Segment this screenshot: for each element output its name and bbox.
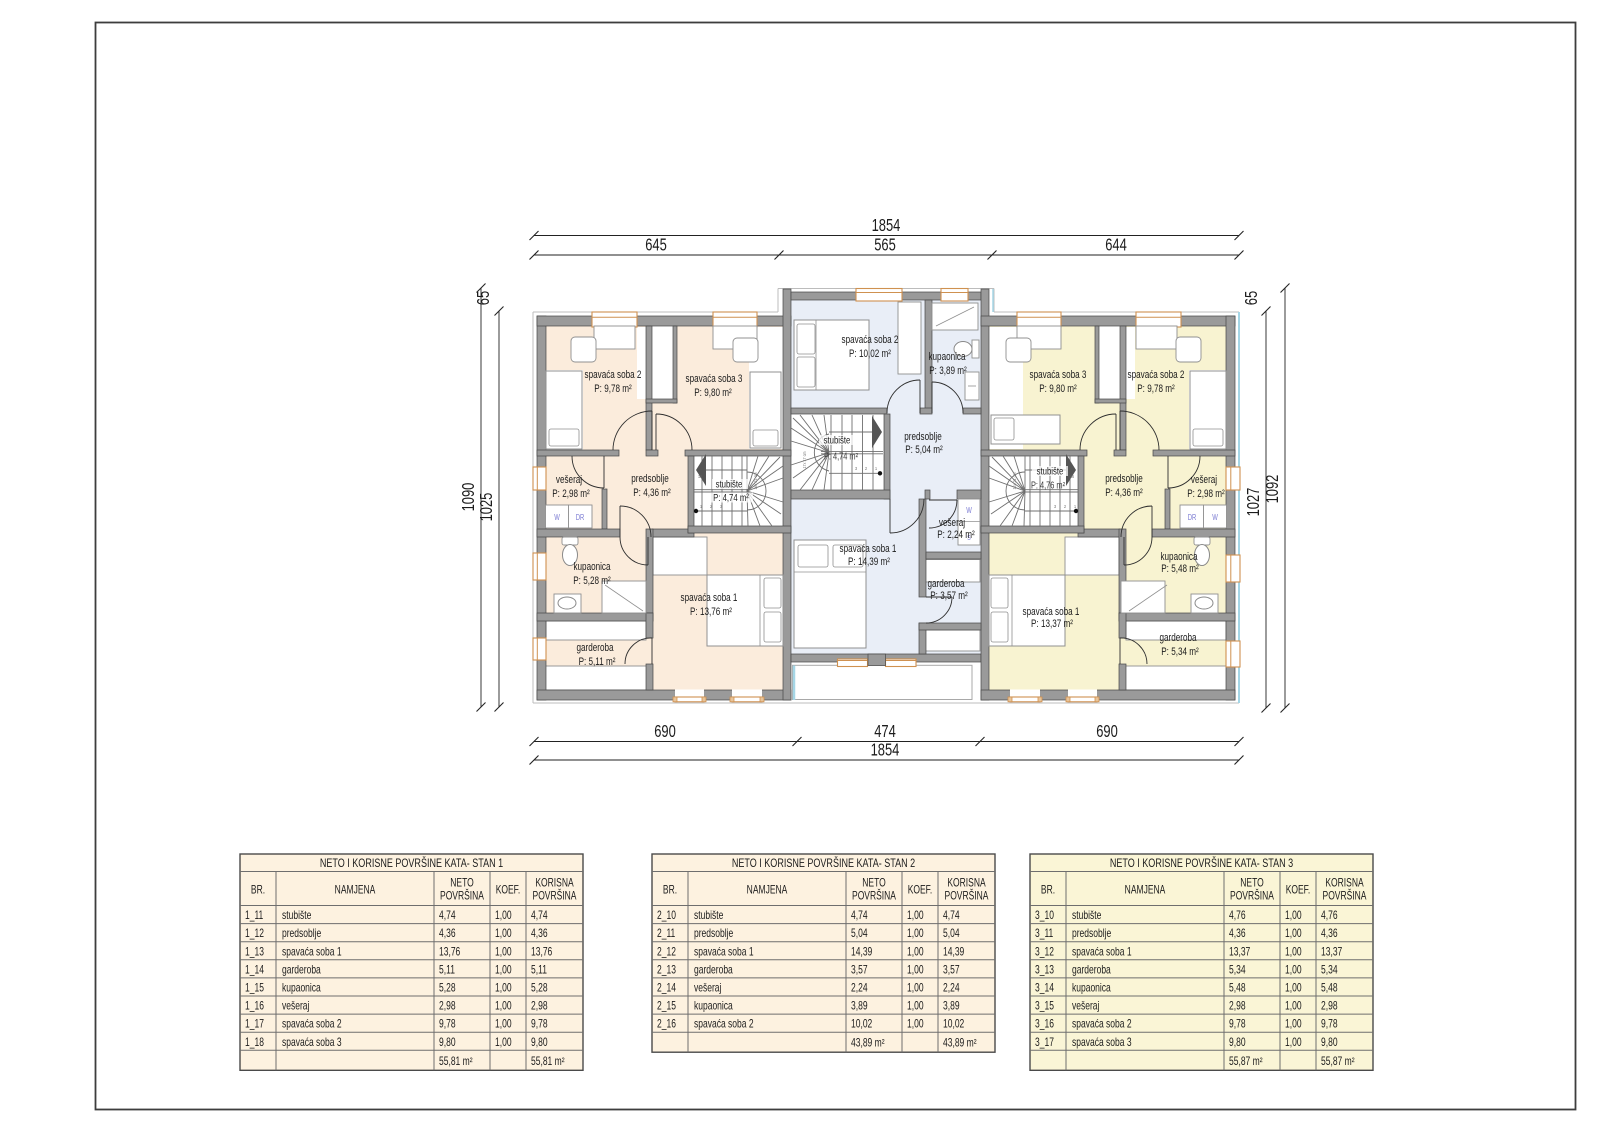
svg-text:P: 2,24 m²: P: 2,24 m² [937,529,975,542]
svg-text:10,02: 10,02 [943,1019,965,1032]
svg-text:spavaća soba 1: spavaća soba 1 [694,946,754,959]
svg-text:1090: 1090 [459,483,478,512]
svg-text:4,76: 4,76 [1321,910,1338,923]
svg-text:13,37: 13,37 [1321,946,1343,959]
svg-text:vešeraj: vešeraj [1072,1001,1099,1014]
svg-text:5,11: 5,11 [531,964,547,977]
svg-text:stubište: stubište [716,478,743,489]
svg-text:spavaća soba 2: spavaća soba 2 [694,1019,754,1032]
svg-text:spavaća soba 3: spavaća soba 3 [1030,369,1087,382]
svg-text:9,78: 9,78 [1229,1019,1246,1032]
svg-text:KOEF.: KOEF. [908,884,933,897]
svg-text:2_16: 2_16 [657,1019,676,1032]
svg-text:1,00: 1,00 [495,1037,512,1050]
svg-text:spavaća soba 2: spavaća soba 2 [842,334,899,347]
svg-text:P: 14,39 m²: P: 14,39 m² [848,556,891,569]
svg-text:4,74: 4,74 [531,910,548,923]
svg-text:P: 5,11 m²: P: 5,11 m² [579,656,617,669]
svg-text:garderoba: garderoba [1159,632,1197,645]
svg-text:NETO: NETO [450,877,474,890]
svg-text:NETO I KORISNE POVRŠINE KATA-: NETO I KORISNE POVRŠINE KATA- STAN 2 [732,856,915,871]
svg-text:NETO I KORISNE POVRŠINE KATA-: NETO I KORISNE POVRŠINE KATA- STAN 3 [1110,856,1293,871]
svg-text:P: 13,76 m²: P: 13,76 m² [690,606,733,619]
svg-text:POVRŠINA: POVRŠINA [1323,888,1367,903]
svg-text:65: 65 [474,291,493,305]
svg-text:garderoba: garderoba [1072,964,1111,977]
svg-text:1,00: 1,00 [907,982,924,995]
svg-text:644: 644 [1105,236,1127,255]
svg-text:1_17: 1_17 [245,1019,264,1032]
svg-text:55,87 m²: 55,87 m² [1321,1056,1355,1069]
svg-text:vešeraj: vešeraj [1191,474,1217,487]
svg-text:3_10: 3_10 [1035,910,1054,923]
svg-text:NAMJENA: NAMJENA [747,884,788,897]
svg-text:5,28: 5,28 [439,982,456,995]
svg-text:W: W [554,514,560,522]
svg-text:2,98: 2,98 [1321,1001,1338,1014]
svg-text:1,00: 1,00 [1285,1019,1302,1032]
svg-text:vešeraj: vešeraj [282,1001,309,1014]
svg-text:NETO I KORISNE POVRŠINE KATA-: NETO I KORISNE POVRŠINE KATA- STAN 1 [320,856,503,871]
svg-text:4,76: 4,76 [1229,910,1246,923]
svg-text:1854: 1854 [871,741,900,760]
svg-text:13,76: 13,76 [439,946,461,959]
svg-text:garderoba: garderoba [282,964,321,977]
svg-text:2,98: 2,98 [1229,1001,1246,1014]
svg-text:3_14: 3_14 [1035,982,1054,995]
svg-text:3_12: 3_12 [1035,946,1054,959]
svg-text:5,34: 5,34 [1229,964,1246,977]
svg-text:spavaća soba 1: spavaća soba 1 [1023,606,1080,619]
svg-text:565: 565 [874,236,896,255]
svg-text:1_14: 1_14 [245,964,264,977]
svg-text:BR.: BR. [1041,884,1055,897]
svg-text:4,74: 4,74 [851,910,868,923]
svg-text:P: 5,28 m²: P: 5,28 m² [573,575,611,588]
svg-text:P: 2,98 m²: P: 2,98 m² [1187,488,1225,501]
svg-text:5,28: 5,28 [531,982,548,995]
svg-text:645: 645 [645,236,667,255]
svg-text:4,36: 4,36 [531,928,548,941]
svg-text:4,36: 4,36 [1229,928,1246,941]
svg-text:14,39: 14,39 [943,946,965,959]
svg-text:16x 21 cm: 16x 21 cm [1011,472,1017,489]
svg-text:spavaća soba 1: spavaća soba 1 [840,543,897,556]
svg-text:1,00: 1,00 [1285,910,1302,923]
svg-text:spavaća soba 3: spavaća soba 3 [1072,1037,1132,1050]
svg-text:3,89: 3,89 [851,1001,868,1014]
svg-text:W: W [1212,514,1218,522]
svg-text:KOEF.: KOEF. [1286,884,1311,897]
svg-text:3_17: 3_17 [1035,1037,1054,1050]
svg-text:1_13: 1_13 [245,946,264,959]
svg-text:65: 65 [1242,291,1261,305]
svg-text:P: 3,89 m²: P: 3,89 m² [929,365,967,378]
svg-text:9,80: 9,80 [1229,1037,1246,1050]
svg-text:9,78: 9,78 [531,1019,548,1032]
svg-text:2_10: 2_10 [657,910,676,923]
svg-text:kupaonica: kupaonica [573,561,611,574]
svg-text:1,00: 1,00 [907,928,924,941]
svg-text:43,89 m²: 43,89 m² [851,1038,885,1051]
svg-text:1,00: 1,00 [495,910,512,923]
svg-text:1_12: 1_12 [245,928,264,941]
svg-text:2_12: 2_12 [657,946,676,959]
svg-text:garderoba: garderoba [576,642,614,655]
svg-text:BR.: BR. [251,884,265,897]
svg-text:1_11: 1_11 [245,910,264,923]
svg-text:2,24: 2,24 [943,982,960,995]
svg-text:9,80: 9,80 [531,1037,548,1050]
svg-text:5,48: 5,48 [1229,982,1246,995]
svg-text:9,80: 9,80 [1321,1037,1338,1050]
svg-text:stubište: stubište [1072,910,1102,923]
svg-text:55,81 m²: 55,81 m² [531,1056,565,1069]
svg-text:W: W [966,507,972,515]
svg-text:spavaća soba 2: spavaća soba 2 [1128,369,1185,382]
svg-text:POVRŠINA: POVRŠINA [945,888,989,903]
svg-text:P: 9,80 m²: P: 9,80 m² [1039,383,1077,396]
svg-text:P: 9,78 m²: P: 9,78 m² [594,383,632,396]
svg-text:9,78: 9,78 [439,1019,456,1032]
svg-text:spavaća soba 2: spavaća soba 2 [1072,1019,1132,1032]
svg-text:9,78: 9,78 [1321,1019,1338,1032]
svg-text:NAMJENA: NAMJENA [1125,884,1166,897]
svg-text:stubište: stubište [282,910,312,923]
svg-text:3_13: 3_13 [1035,964,1054,977]
svg-text:5,04: 5,04 [943,928,960,941]
svg-text:predsoblje: predsoblje [694,928,734,941]
svg-text:1,00: 1,00 [1285,964,1302,977]
svg-text:P: 5,34 m²: P: 5,34 m² [1161,646,1199,659]
svg-text:garderoba: garderoba [927,578,965,591]
svg-text:14,39: 14,39 [851,946,873,959]
svg-text:10,02: 10,02 [851,1019,873,1032]
svg-text:1854: 1854 [872,216,901,235]
svg-text:P: 9,80 m²: P: 9,80 m² [694,387,732,400]
svg-text:16x 21 cm: 16x 21 cm [752,472,758,489]
svg-text:1,00: 1,00 [495,982,512,995]
svg-text:5,34: 5,34 [1321,964,1338,977]
svg-text:17x 17 cm: 17x 17 cm [801,451,807,468]
svg-text:4,36: 4,36 [1321,928,1338,941]
svg-text:P: 2,98 m²: P: 2,98 m² [552,488,590,501]
svg-text:55,81 m²: 55,81 m² [439,1056,473,1069]
svg-text:vešeraj: vešeraj [556,474,582,487]
svg-text:1025: 1025 [477,493,496,522]
svg-text:vešeraj: vešeraj [939,517,965,530]
svg-text:spavaća soba 1: spavaća soba 1 [1072,946,1132,959]
svg-text:2_11: 2_11 [657,928,676,941]
svg-text:1,00: 1,00 [907,1019,924,1032]
svg-text:spavaća soba 2: spavaća soba 2 [282,1019,342,1032]
svg-text:3,57: 3,57 [943,964,960,977]
svg-text:1,00: 1,00 [907,1001,924,1014]
svg-text:1,00: 1,00 [1285,928,1302,941]
svg-text:5,11: 5,11 [439,964,455,977]
svg-text:690: 690 [654,722,676,741]
svg-text:1,00: 1,00 [495,1019,512,1032]
svg-text:2,24: 2,24 [851,982,868,995]
svg-text:predsoblje: predsoblje [631,473,668,486]
svg-text:2,98: 2,98 [439,1001,456,1014]
svg-text:16: 16 [698,473,703,479]
svg-text:1_16: 1_16 [245,1001,264,1014]
svg-text:1,00: 1,00 [907,946,924,959]
svg-text:3_16: 3_16 [1035,1019,1054,1032]
svg-text:KORISNA: KORISNA [1325,877,1363,890]
svg-text:DR: DR [1188,514,1197,522]
svg-text:spavaća soba 2: spavaća soba 2 [585,369,642,382]
svg-text:DR: DR [576,514,585,522]
svg-text:P: 4,74 m²: P: 4,74 m² [824,450,858,461]
svg-text:P: 3,57 m²: P: 3,57 m² [930,590,968,603]
svg-text:predsoblje: predsoblje [282,928,322,941]
svg-text:stubište: stubište [824,434,851,445]
svg-text:690: 690 [1096,722,1118,741]
svg-text:POVRŠINA: POVRŠINA [533,888,577,903]
svg-text:P: 13,37 m²: P: 13,37 m² [1031,618,1074,631]
svg-text:1,00: 1,00 [1285,1001,1302,1014]
svg-text:16: 16 [1070,473,1075,479]
svg-text:spavaća soba 3: spavaća soba 3 [686,373,743,386]
svg-text:1_18: 1_18 [245,1037,264,1050]
svg-text:vešeraj: vešeraj [694,982,721,995]
svg-text:4,36: 4,36 [439,928,456,941]
svg-text:1027: 1027 [1244,488,1263,517]
svg-text:1,00: 1,00 [495,946,512,959]
svg-text:3,57: 3,57 [851,964,868,977]
svg-text:9,80: 9,80 [439,1037,456,1050]
svg-text:1,00: 1,00 [907,964,924,977]
svg-text:KORISNA: KORISNA [947,877,985,890]
svg-text:kupaonica: kupaonica [694,1001,733,1014]
svg-text:P: 4,76 m²: P: 4,76 m² [1031,479,1065,490]
svg-text:P: 5,48 m²: P: 5,48 m² [1161,563,1199,576]
svg-text:43,89 m²: 43,89 m² [943,1038,977,1051]
svg-text:P: 4,36 m²: P: 4,36 m² [633,487,671,500]
svg-text:BR.: BR. [663,884,677,897]
svg-text:1,00: 1,00 [1285,1037,1302,1050]
svg-text:POVRŠINA: POVRŠINA [852,888,896,903]
svg-text:3,89: 3,89 [943,1001,960,1014]
svg-text:POVRŠINA: POVRŠINA [440,888,484,903]
svg-text:2,98: 2,98 [531,1001,548,1014]
svg-text:predsoblje: predsoblje [1105,473,1142,486]
svg-text:3_15: 3_15 [1035,1001,1054,1014]
svg-text:stubište: stubište [694,910,724,923]
svg-text:kupaonica: kupaonica [282,982,321,995]
svg-text:P: 5,04 m²: P: 5,04 m² [905,444,943,457]
svg-text:1,00: 1,00 [495,1001,512,1014]
svg-text:474: 474 [874,722,896,741]
svg-text:garderoba: garderoba [694,964,733,977]
svg-text:kupaonica: kupaonica [1072,982,1111,995]
svg-text:KORISNA: KORISNA [535,877,573,890]
svg-text:13,76: 13,76 [531,946,553,959]
svg-text:2_15: 2_15 [657,1001,676,1014]
svg-text:NAMJENA: NAMJENA [335,884,376,897]
svg-text:13,37: 13,37 [1229,946,1251,959]
svg-text:predsoblje: predsoblje [904,431,941,444]
svg-text:P: 9,78 m²: P: 9,78 m² [1137,383,1175,396]
svg-text:55,87 m²: 55,87 m² [1229,1056,1263,1069]
svg-text:3_11: 3_11 [1035,928,1054,941]
svg-text:1,00: 1,00 [495,964,512,977]
svg-text:4,74: 4,74 [439,910,456,923]
svg-text:spavaća soba 1: spavaća soba 1 [681,592,738,605]
svg-text:5,48: 5,48 [1321,982,1338,995]
svg-text:KOEF.: KOEF. [496,884,521,897]
svg-text:4,74: 4,74 [943,910,960,923]
svg-text:spavaća soba 3: spavaća soba 3 [282,1037,342,1050]
svg-text:kupaonica: kupaonica [928,351,966,364]
svg-text:P: 10,02 m²: P: 10,02 m² [849,348,892,361]
svg-text:1,00: 1,00 [907,910,924,923]
svg-text:2_14: 2_14 [657,982,676,995]
svg-text:5,04: 5,04 [851,928,868,941]
svg-text:stubište: stubište [1037,465,1064,476]
svg-text:P: 4,36 m²: P: 4,36 m² [1105,487,1143,500]
svg-text:1_15: 1_15 [245,982,264,995]
svg-text:1,00: 1,00 [1285,982,1302,995]
svg-text:POVRŠINA: POVRŠINA [1230,888,1274,903]
svg-text:kupaonica: kupaonica [1160,551,1198,564]
svg-text:1,00: 1,00 [495,928,512,941]
svg-text:NETO: NETO [1240,877,1264,890]
svg-text:spavaća soba 1: spavaća soba 1 [282,946,342,959]
svg-text:1,00: 1,00 [1285,946,1302,959]
svg-text:NETO: NETO [862,877,886,890]
svg-text:predsoblje: predsoblje [1072,928,1112,941]
svg-text:P: 4,74 m²: P: 4,74 m² [713,492,749,503]
svg-text:2_13: 2_13 [657,964,676,977]
